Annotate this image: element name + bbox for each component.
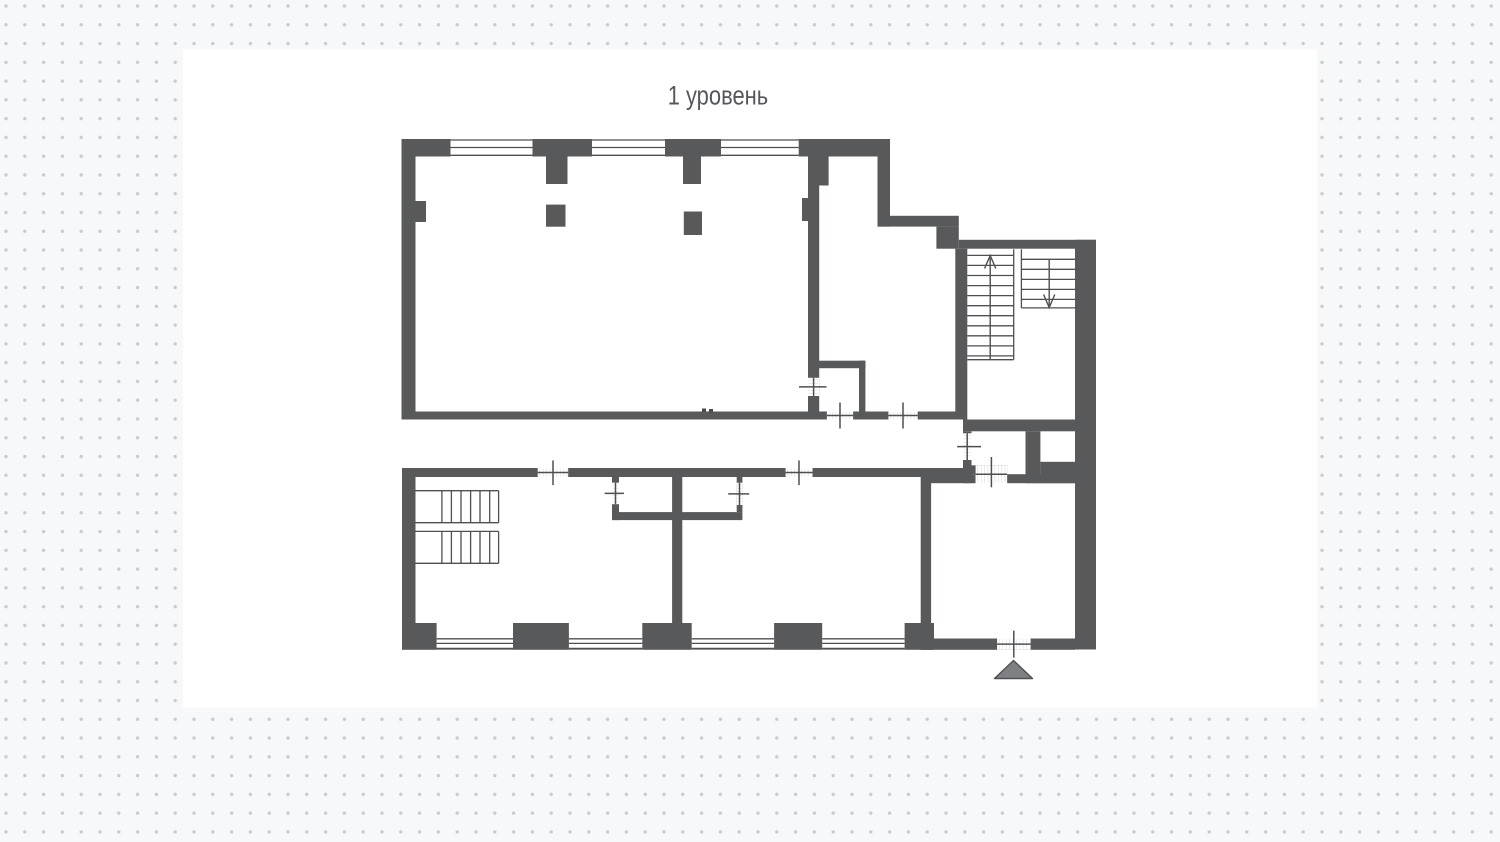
svg-text:1 уровень: 1 уровень <box>668 81 769 111</box>
